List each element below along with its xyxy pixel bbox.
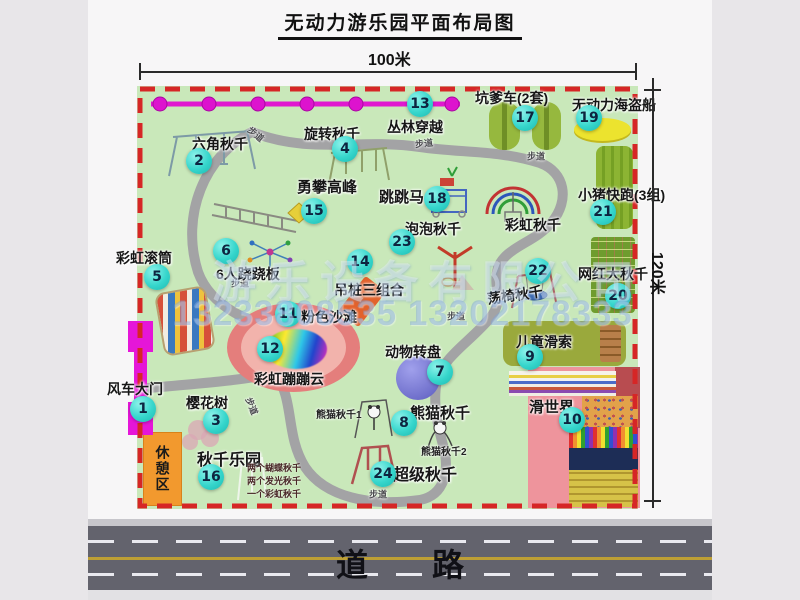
rest-area: 休憩区 [143, 432, 182, 506]
road-bottom-strip [88, 590, 712, 600]
label-pit-cart: 坑爹车(2套) [475, 88, 548, 108]
rainbow-slide-lanes [509, 371, 616, 396]
badge-12: 12 [257, 336, 283, 362]
sublabel-panda-swing-1: 熊猫秋千1 [316, 406, 362, 421]
label-climbing-peak: 勇攀高峰 [297, 176, 357, 197]
badge-1: 1 [130, 396, 156, 422]
badge-16: 16 [198, 464, 224, 490]
badge-19: 19 [576, 105, 602, 131]
sublabel-panda-swing-2: 熊猫秋千2 [421, 443, 467, 458]
slide-world-wave-deck [569, 470, 638, 507]
watermark-phone: 13233808535 13202178333 [172, 294, 633, 334]
dim-top-tick-left [139, 63, 141, 80]
label-windmill-gate: 风车大门 [107, 379, 163, 399]
stage: 无动力游乐园平面布局图 100米 120米 休憩区 [0, 0, 800, 600]
pit-cart-track-2 [532, 102, 561, 150]
label-bounce-cloud: 彩虹蹦蹦云 [254, 369, 324, 389]
label-jumping-horse: 跳跳马 [379, 186, 424, 207]
note-butterfly-swings: 两个蝴蝶秋千 [247, 461, 301, 474]
road: 道路 [88, 526, 712, 590]
label-panda-swing: 熊猫秋千 [410, 402, 470, 423]
note-rainbow-swing: 一个彩虹秋千 [247, 487, 301, 500]
trail-label: 步道 [527, 150, 545, 163]
dim-right-tick-top [644, 89, 661, 91]
label-animal-turntable: 动物转盘 [385, 342, 441, 362]
label-rainbow-swing: 彩虹秋千 [505, 215, 561, 235]
badge-10: 10 [559, 407, 585, 433]
dim-top-line [140, 71, 637, 73]
badge-18: 18 [424, 186, 450, 212]
badge-9: 9 [517, 344, 543, 370]
badge-24: 24 [370, 461, 396, 487]
dim-top-tick-right [635, 63, 637, 80]
note-glow-swings: 两个发光秋千 [247, 474, 301, 487]
park-plan-page: { "title": "无动力游乐园平面布局图", "dim_w": "100米… [0, 0, 800, 600]
trail-label: 步道 [369, 488, 387, 501]
dim-height-label: 120米 [647, 252, 671, 295]
slide-world-dot-deck [582, 396, 638, 428]
badge-21: 21 [590, 199, 616, 225]
badge-5: 5 [144, 264, 170, 290]
badge-15: 15 [301, 198, 327, 224]
badge-3: 3 [203, 408, 229, 434]
road-label: 道路 [88, 540, 712, 586]
windmill-gate-top [128, 321, 153, 352]
dim-right-tick-bottom [644, 500, 661, 502]
badge-17: 17 [512, 105, 538, 131]
badge-2: 2 [186, 148, 212, 174]
badge-7: 7 [427, 359, 453, 385]
trail-label: 步道 [414, 136, 433, 151]
slide-world-navy-deck [569, 448, 638, 470]
label-jungle-crossing: 丛林穿越 [387, 117, 443, 137]
page-title: 无动力游乐园平面布局图 [0, 8, 800, 35]
badge-8: 8 [391, 410, 417, 436]
road-curb [88, 519, 712, 526]
dim-width-label: 100米 [368, 46, 411, 70]
badge-13: 13 [407, 91, 433, 117]
label-super-swing: 超级秋千 [393, 461, 457, 485]
badge-4: 4 [332, 136, 358, 162]
